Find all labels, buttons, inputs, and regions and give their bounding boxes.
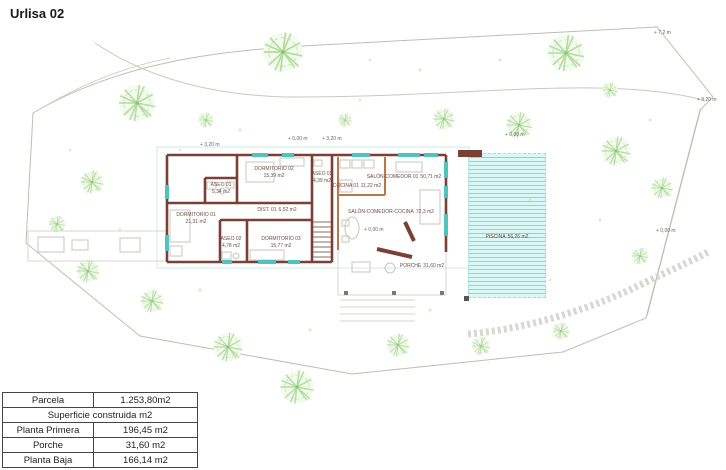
pool-ladder xyxy=(464,296,469,301)
staircase xyxy=(313,222,331,257)
room-area: 4,78 m2 xyxy=(222,243,240,249)
room-label: ASEO 02 xyxy=(221,236,242,242)
elevation-annotation: + 3,20 m xyxy=(322,136,342,142)
table-section-header-row: Superficie construida m2 xyxy=(3,408,198,423)
room-area: 15,39 m2 xyxy=(264,173,285,179)
tree xyxy=(472,337,490,355)
room-label: ASEO 01 xyxy=(211,182,232,188)
tree xyxy=(387,334,410,357)
row-value: 166,14 m2 xyxy=(94,453,198,468)
row-label: Planta Primera xyxy=(3,423,94,438)
row-label: Porche xyxy=(3,438,94,453)
elevation-annotation: + 0,00 m xyxy=(505,132,525,138)
tree xyxy=(602,137,631,166)
room-label: COCINA 0111,22 m2 xyxy=(333,183,381,189)
elevation-annotation: + 3,20 m xyxy=(200,142,220,148)
tree xyxy=(338,113,352,127)
room-area: 5,34 m2 xyxy=(212,189,230,195)
paver-path xyxy=(468,252,708,334)
tree xyxy=(77,260,100,283)
tree xyxy=(119,85,155,121)
house-walls xyxy=(167,150,482,262)
pool-corner-wall xyxy=(458,150,482,157)
row-value: 1.253,80m2 xyxy=(94,393,198,408)
elevation-annotation: + 0,00 m xyxy=(656,228,676,234)
room-label: ASEO 03 xyxy=(312,171,333,177)
tree xyxy=(199,113,214,128)
room-label: PISCINA56,26 m2 xyxy=(486,234,529,240)
tree xyxy=(49,216,66,233)
tree xyxy=(434,109,455,130)
tree xyxy=(141,290,164,313)
table-row: Parcela 1.253,80m2 xyxy=(3,393,198,408)
row-value: 31,60 m2 xyxy=(94,438,198,453)
parcel-boundary xyxy=(26,27,713,374)
room-area: 15,77 m2 xyxy=(271,243,292,249)
row-label: Planta Baja xyxy=(3,453,94,468)
elevation-annotation: + 0,00 m xyxy=(364,227,384,233)
tree xyxy=(264,33,303,72)
tree xyxy=(553,323,570,340)
tree xyxy=(548,35,584,71)
table-row: Planta Baja 166,14 m2 xyxy=(3,453,198,468)
tree xyxy=(652,178,673,199)
page-title: Urlisa 02 xyxy=(10,6,64,21)
room-area: 21,31 m2 xyxy=(186,219,207,225)
elevation-annotation: + 3,20 m xyxy=(697,97,717,103)
room-label: DORMITORIO 02 xyxy=(254,166,294,172)
row-value: 196,45 m2 xyxy=(94,423,198,438)
row-label: Parcela xyxy=(3,393,94,408)
elevation-annotation: + 0,00 m xyxy=(288,136,308,142)
room-label: SALÓN-COMEDOR-COCINA72,3 m2 xyxy=(348,208,434,215)
tree xyxy=(281,371,314,404)
elevation-annotation: + 7,2 m xyxy=(654,30,671,36)
left-terrace xyxy=(28,231,167,261)
room-label: SALÓN-COMEDOR 0150,71 m2 xyxy=(367,173,442,180)
room-label: DIST. 016,52 m2 xyxy=(257,207,296,213)
section-header: Superficie construida m2 xyxy=(3,408,198,423)
areas-table: Parcela 1.253,80m2 Superficie construida… xyxy=(2,392,198,468)
room-label: DORMITORIO 01 xyxy=(176,212,216,218)
tree xyxy=(603,83,618,98)
room-area: 4,39 m2 xyxy=(313,178,331,184)
table-row: Planta Primera 196,45 m2 xyxy=(3,423,198,438)
tree xyxy=(81,171,104,194)
tree xyxy=(214,333,243,362)
room-label: DORMITORIO 03 xyxy=(261,236,301,242)
table-row: Porche 31,60 m2 xyxy=(3,438,198,453)
tree xyxy=(632,248,649,265)
